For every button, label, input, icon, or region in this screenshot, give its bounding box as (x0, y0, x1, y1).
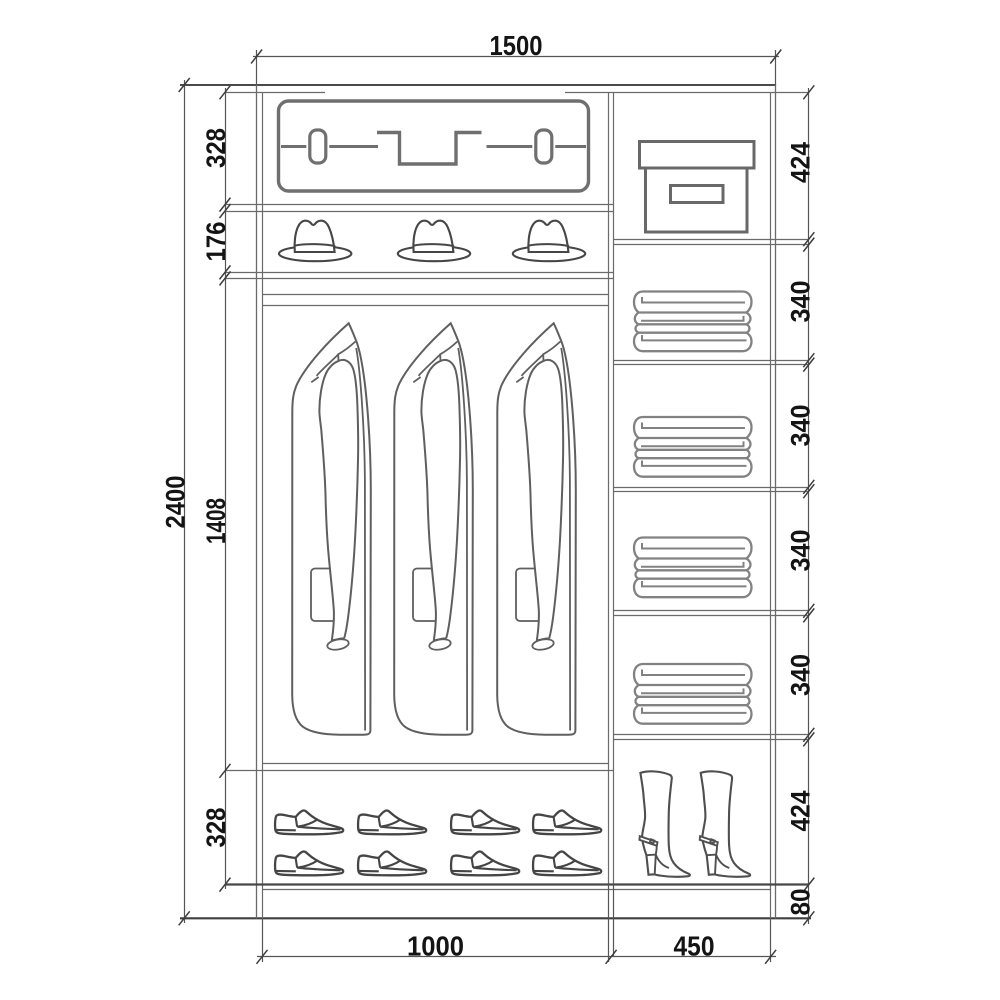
svg-text:450: 450 (674, 931, 715, 962)
svg-text:328: 328 (201, 808, 231, 848)
svg-text:80: 80 (786, 889, 816, 916)
svg-text:1500: 1500 (490, 30, 543, 61)
svg-text:1408: 1408 (201, 498, 231, 544)
svg-text:424: 424 (786, 142, 816, 183)
svg-text:2400: 2400 (161, 476, 191, 529)
svg-text:340: 340 (786, 530, 816, 572)
svg-text:328: 328 (201, 128, 231, 168)
svg-text:1000: 1000 (407, 931, 464, 962)
svg-text:176: 176 (201, 222, 231, 262)
svg-text:340: 340 (786, 654, 816, 696)
svg-text:340: 340 (786, 405, 816, 447)
svg-text:424: 424 (786, 791, 816, 832)
svg-text:340: 340 (786, 281, 816, 323)
